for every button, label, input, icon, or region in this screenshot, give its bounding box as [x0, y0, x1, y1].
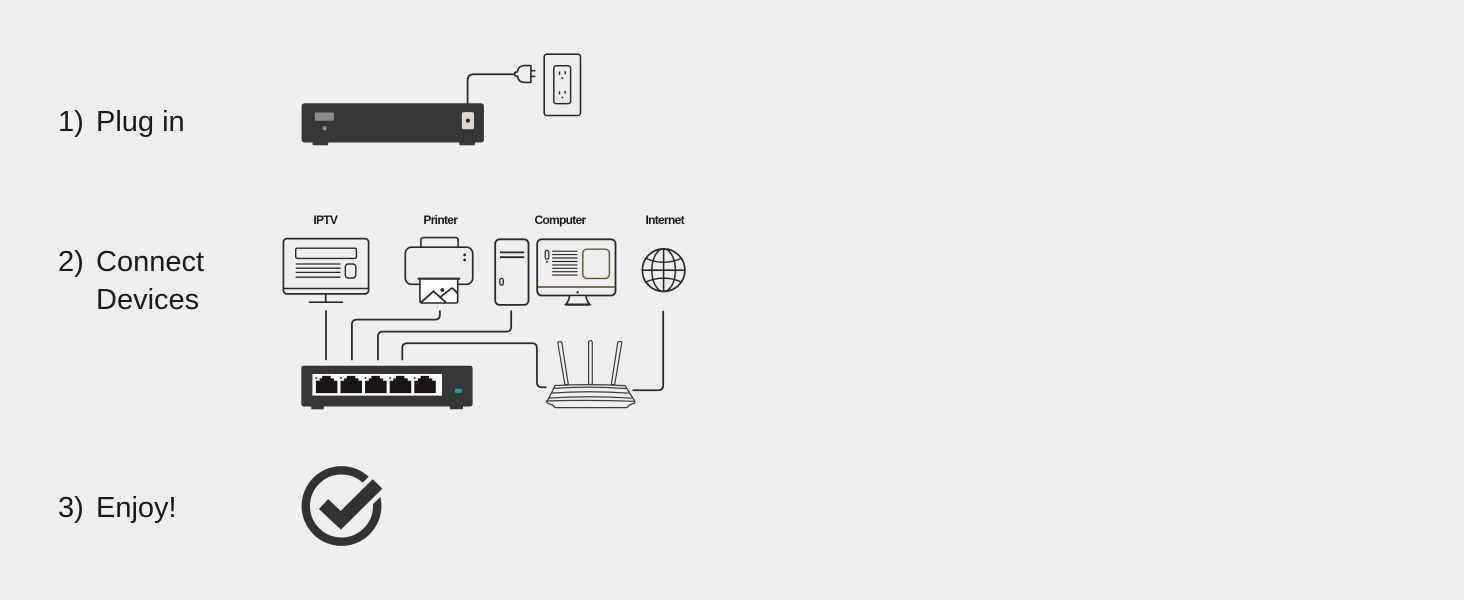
svg-text:Internet: Internet [645, 213, 684, 227]
svg-text:Computer: Computer [534, 213, 586, 227]
svg-text:Printer: Printer [423, 213, 458, 227]
svg-text:IPTV: IPTV [313, 213, 338, 227]
